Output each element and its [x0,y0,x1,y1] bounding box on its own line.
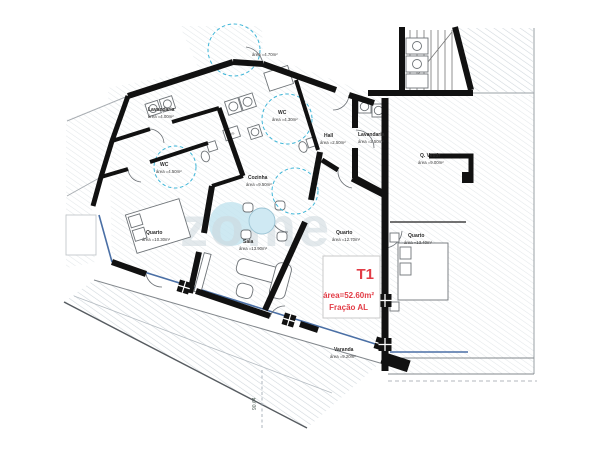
room-label-hall: Hall [324,133,334,139]
room-label-quarto-right: Quarto [408,233,424,239]
room-area-sala: área =13.90m² [239,246,268,251]
room-label-lavandaria-2: Lavandaria [358,132,385,138]
wall-top-link [233,62,263,64]
dining-table [249,208,275,234]
room-area-top-partial: área =4.70m² [252,52,278,57]
room-area-wc-center: área =4.30m² [272,117,298,122]
room-area-hall: área =2.50m² [320,140,346,145]
room-area-quarto-right: área =13.40m² [404,240,433,245]
nightstand-1 [390,233,399,242]
room-label-lavandaria-1: Lavandaria [148,107,175,113]
room-label-cozinha: Cozinha [248,175,268,181]
chair-4 [277,232,287,241]
room-area-wc-left: área =4.50m² [156,169,182,174]
room-area-quarto-left: área =10.30m² [142,237,171,242]
room-label-wc-center: WC [278,110,287,116]
chair-1 [243,203,253,212]
floorplan-svg: zome [0,0,600,450]
chair-3 [241,230,251,239]
unit-area-label: área=52.60m² [323,291,374,300]
unit-fraction-label: Fração AL [329,303,368,312]
neighbor-bed [66,215,96,255]
room-area-varanda: área =9.20m² [330,354,356,359]
room-area-cozinha: área =9.50m² [246,182,272,187]
unit-info-box: T1 área=52.60m² Fração AL [323,256,380,318]
room-area-lavandaria-1: área =4.00m² [148,114,174,119]
room-area-quarto-mid: área =12.70m² [332,237,361,242]
unit-type-label: T1 [356,266,374,283]
floorplan-page: zome [0,0,600,450]
room-label-quarto-left: Quarto [146,230,162,236]
room-label-quarto-mid: Quarto [336,230,352,236]
room-label-wc-left: WC [160,162,169,168]
left-window-glazing [99,215,112,262]
room-label-qvestir: Q. Vestir [420,153,440,159]
room-label-sala: Sala [243,239,254,245]
room-area-lavandaria-2: área =2.50m² [358,139,384,144]
room-label-varanda: Varanda [334,347,354,353]
room-area-qvestir: área =9.00m² [418,160,444,165]
dimension-label: 90.64 [252,397,258,410]
neighbor-cabinets [406,38,428,88]
column-qvestir [462,172,473,183]
